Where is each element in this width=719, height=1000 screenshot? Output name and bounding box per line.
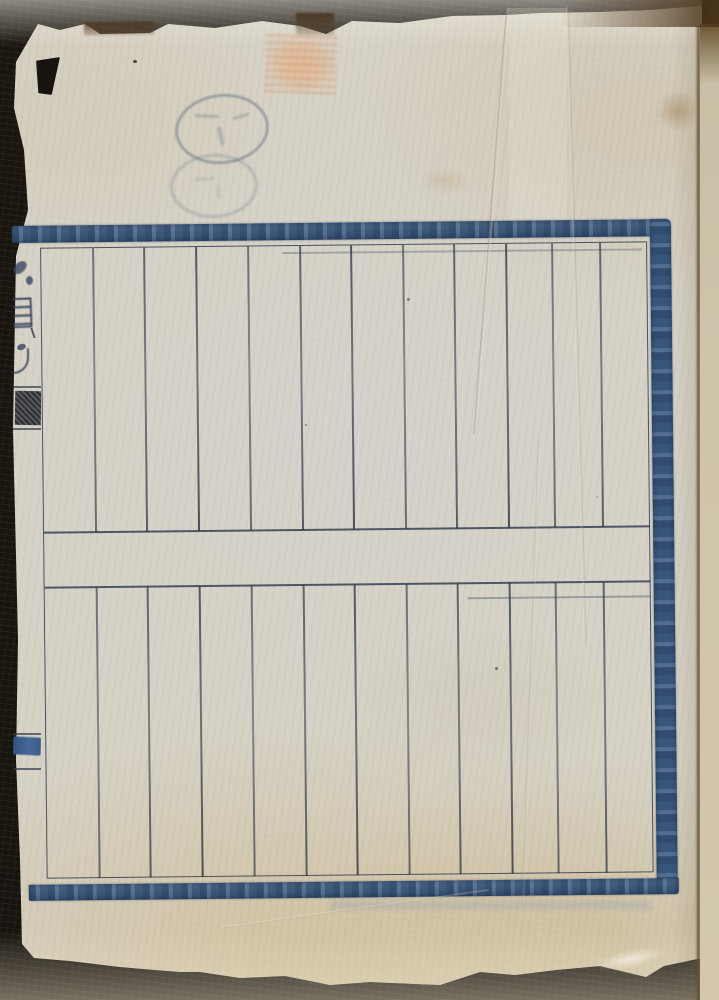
strip-divider-line: [13, 733, 41, 735]
seal-inner-mark: [217, 185, 221, 199]
column-rule-line: [603, 582, 608, 873]
scanned-page: [0, 0, 719, 1000]
strip-divider-line: [13, 428, 41, 430]
glyph-fragment: [13, 298, 33, 329]
seal-inner-mark: [217, 127, 225, 145]
column-rule-line: [555, 582, 560, 873]
blue-ink-dash: [13, 736, 41, 755]
column-rule-line: [251, 586, 256, 877]
crease-light-band: [509, 8, 567, 236]
seal-inner-mark: [195, 114, 219, 118]
column-rule-line: [199, 586, 204, 877]
edge-debris: [84, 21, 154, 35]
column-rule-line: [147, 587, 152, 878]
column-rule-line: [96, 587, 101, 878]
ink-speck: [133, 60, 137, 63]
seal-inner-mark: [233, 113, 249, 120]
glyph-fragment: [13, 259, 29, 277]
lower-row-columns: [12, 233, 681, 892]
gutter-stain: [650, 84, 706, 138]
strip-divider-line: [13, 768, 41, 770]
column-rule-line: [303, 585, 308, 876]
top-right-burn-shadow: [560, 0, 719, 27]
strip-divider-line: [13, 386, 41, 388]
faint-stain: [420, 168, 470, 194]
solid-ink-tab-block: [15, 391, 41, 425]
seal-inner-mark: [195, 177, 215, 181]
glyph-fragment: [26, 276, 33, 285]
edge-debris: [296, 13, 334, 35]
printed-grid-frame: [12, 233, 681, 892]
gutter-margin-strip: [13, 252, 41, 812]
glyph-fragment: [25, 328, 35, 338]
column-rule-line: [406, 584, 411, 875]
glyph-fragment: [13, 348, 29, 374]
column-rule-line: [457, 583, 462, 874]
column-rule-line: [354, 584, 359, 875]
next-page-sliver: [700, 24, 719, 1000]
orange-rect-stamp: [264, 33, 338, 95]
column-rule-line: [509, 583, 514, 874]
